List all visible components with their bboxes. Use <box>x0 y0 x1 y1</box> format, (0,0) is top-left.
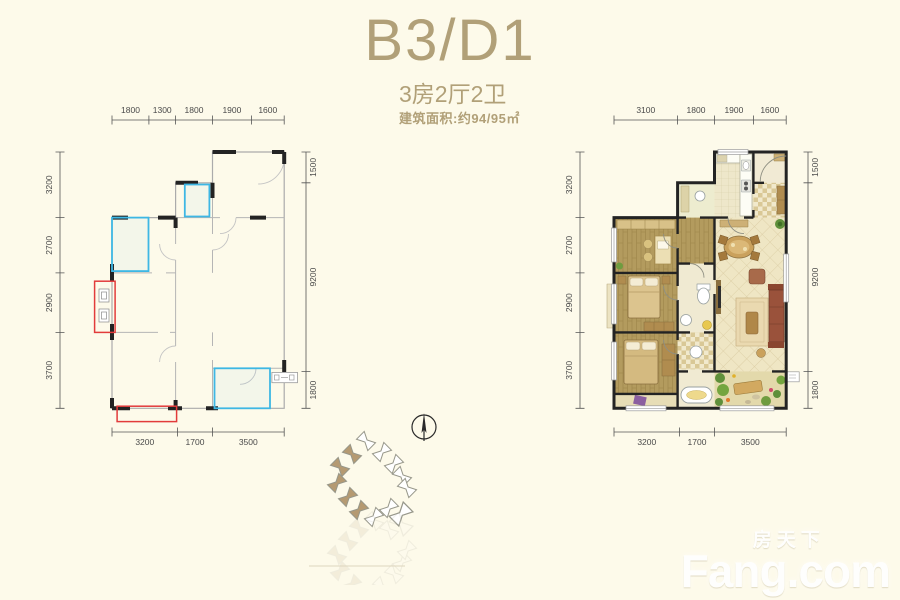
nightstand <box>618 276 626 284</box>
dim-chain-left <box>576 152 585 408</box>
dim-label: 1900 <box>724 105 743 115</box>
washbasin <box>695 191 705 201</box>
dim-label: 9200 <box>308 267 318 286</box>
window <box>626 406 666 411</box>
dim-label: 1600 <box>258 105 277 115</box>
plant <box>761 396 771 406</box>
fang-logo-en: Fang.com <box>681 550 890 594</box>
dim-label: 1800 <box>121 105 140 115</box>
window <box>718 150 748 155</box>
desk <box>655 236 671 264</box>
plant <box>715 373 725 383</box>
dim-label: 1800 <box>687 105 706 115</box>
plan-title: B3/D1 <box>0 12 900 70</box>
nightstand <box>662 276 670 284</box>
building-footprint-highlight <box>338 487 357 506</box>
dim-label: 1700 <box>186 437 205 447</box>
plan-header-sub: 3房2厅2卫 建筑面积:约94/95㎡ <box>399 82 520 127</box>
compass-icon <box>412 413 436 441</box>
fang-watermark: 房天下 Fang.com <box>681 531 890 594</box>
dim-chain-top <box>112 116 284 125</box>
dim-label: 3700 <box>564 361 574 380</box>
plant <box>715 398 723 406</box>
sideboard <box>720 220 748 227</box>
dim-label: 1800 <box>308 380 318 399</box>
plant <box>773 390 781 398</box>
dim-chain-bottom <box>112 428 284 437</box>
dim-label: 3200 <box>637 437 656 447</box>
building-footprint-highlight <box>330 457 349 476</box>
dining-chair <box>750 251 760 261</box>
dim-label: 1900 <box>222 105 241 115</box>
floorplan-page: B3/D1 3房2厅2卫 建筑面积:约94/95㎡ 1800 1300 1800… <box>0 0 900 600</box>
door-arcs <box>160 158 285 384</box>
building-footprint <box>372 442 391 461</box>
washer <box>690 346 702 358</box>
plant <box>616 263 623 270</box>
dim-label: 9200 <box>810 267 820 286</box>
toilet <box>698 288 710 304</box>
dim-label: 3200 <box>44 175 54 194</box>
sink <box>681 315 692 326</box>
dim-label: 3500 <box>741 437 760 447</box>
building-footprint-highlight <box>349 500 368 519</box>
coffee-table <box>746 312 758 334</box>
sofa-arm <box>768 284 784 290</box>
dim-label: 3100 <box>636 105 655 115</box>
dim-label: 1800 <box>810 380 820 399</box>
kitchen-sink <box>743 162 749 170</box>
window-marker-balcony <box>215 368 271 408</box>
ac-unit-box <box>272 372 298 382</box>
dim-label: 2700 <box>44 236 54 255</box>
building-footprint-highlight <box>327 473 346 492</box>
armchair <box>749 269 765 284</box>
shoe-cabinet <box>774 154 785 161</box>
site-plan <box>303 400 473 585</box>
dim-label: 1600 <box>760 105 779 115</box>
corridor-floor <box>678 218 715 264</box>
window-marker-bath <box>185 185 210 217</box>
dim-label: 2900 <box>44 293 54 312</box>
dim-label: 1500 <box>308 158 318 177</box>
ac-unit-box <box>786 372 799 382</box>
building-footprint-highlight <box>342 444 361 463</box>
floorplan-rendered: 3100 1800 1900 1600 3200 2700 2900 3700 … <box>560 94 880 462</box>
window <box>612 228 617 262</box>
dim-label: 3500 <box>239 437 258 447</box>
tv <box>718 286 721 308</box>
building-footprint <box>356 431 375 450</box>
window <box>612 284 617 324</box>
dim-label: 1300 <box>153 105 172 115</box>
study-cabinet <box>617 220 675 229</box>
wardrobe <box>644 322 674 331</box>
side-table <box>757 349 766 358</box>
window <box>784 254 789 302</box>
plant <box>717 384 729 396</box>
dim-label: 1700 <box>688 437 707 447</box>
desk-chair <box>644 240 653 249</box>
desk-chair <box>644 253 653 262</box>
dining-chair <box>718 251 728 261</box>
plant <box>777 376 786 385</box>
dim-chain-left <box>56 152 65 408</box>
dim-label: 3700 <box>44 361 54 380</box>
window-marker-bedroom <box>112 218 149 272</box>
plan-area-label: 建筑面积:约94/95㎡ <box>399 108 520 127</box>
window <box>720 406 774 411</box>
dim-label: 2700 <box>564 236 574 255</box>
dim-label: 1500 <box>810 158 820 177</box>
dim-label: 3200 <box>135 437 154 447</box>
dim-chain-bottom <box>614 428 786 437</box>
dim-label: 1800 <box>185 105 204 115</box>
dim-label: 3200 <box>564 175 574 194</box>
dim-label: 2900 <box>564 293 574 312</box>
hamper <box>703 321 712 330</box>
dim-chain-top <box>614 116 786 125</box>
plan-layout-label: 3房2厅2卫 <box>399 82 520 106</box>
sofa <box>769 290 784 342</box>
window <box>612 342 617 380</box>
sofa-arm <box>768 342 784 348</box>
bath2-cabinet <box>681 186 689 212</box>
